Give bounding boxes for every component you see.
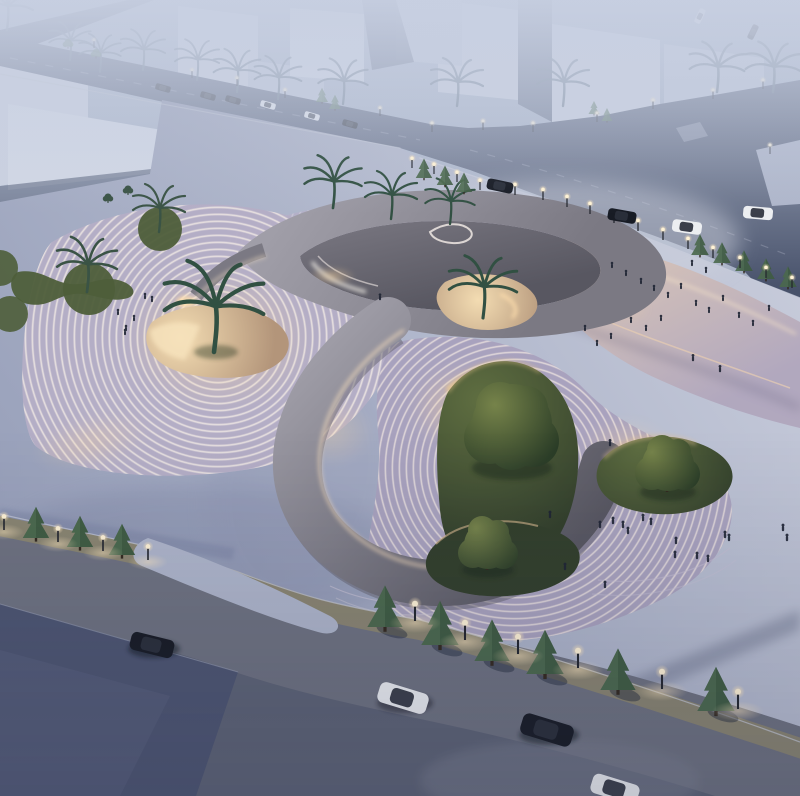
vignette: [0, 430, 800, 796]
architectural-rendering-canvas: [0, 0, 800, 796]
haze-top-layer: [0, 0, 800, 215]
rendering-viewport: [0, 0, 800, 796]
